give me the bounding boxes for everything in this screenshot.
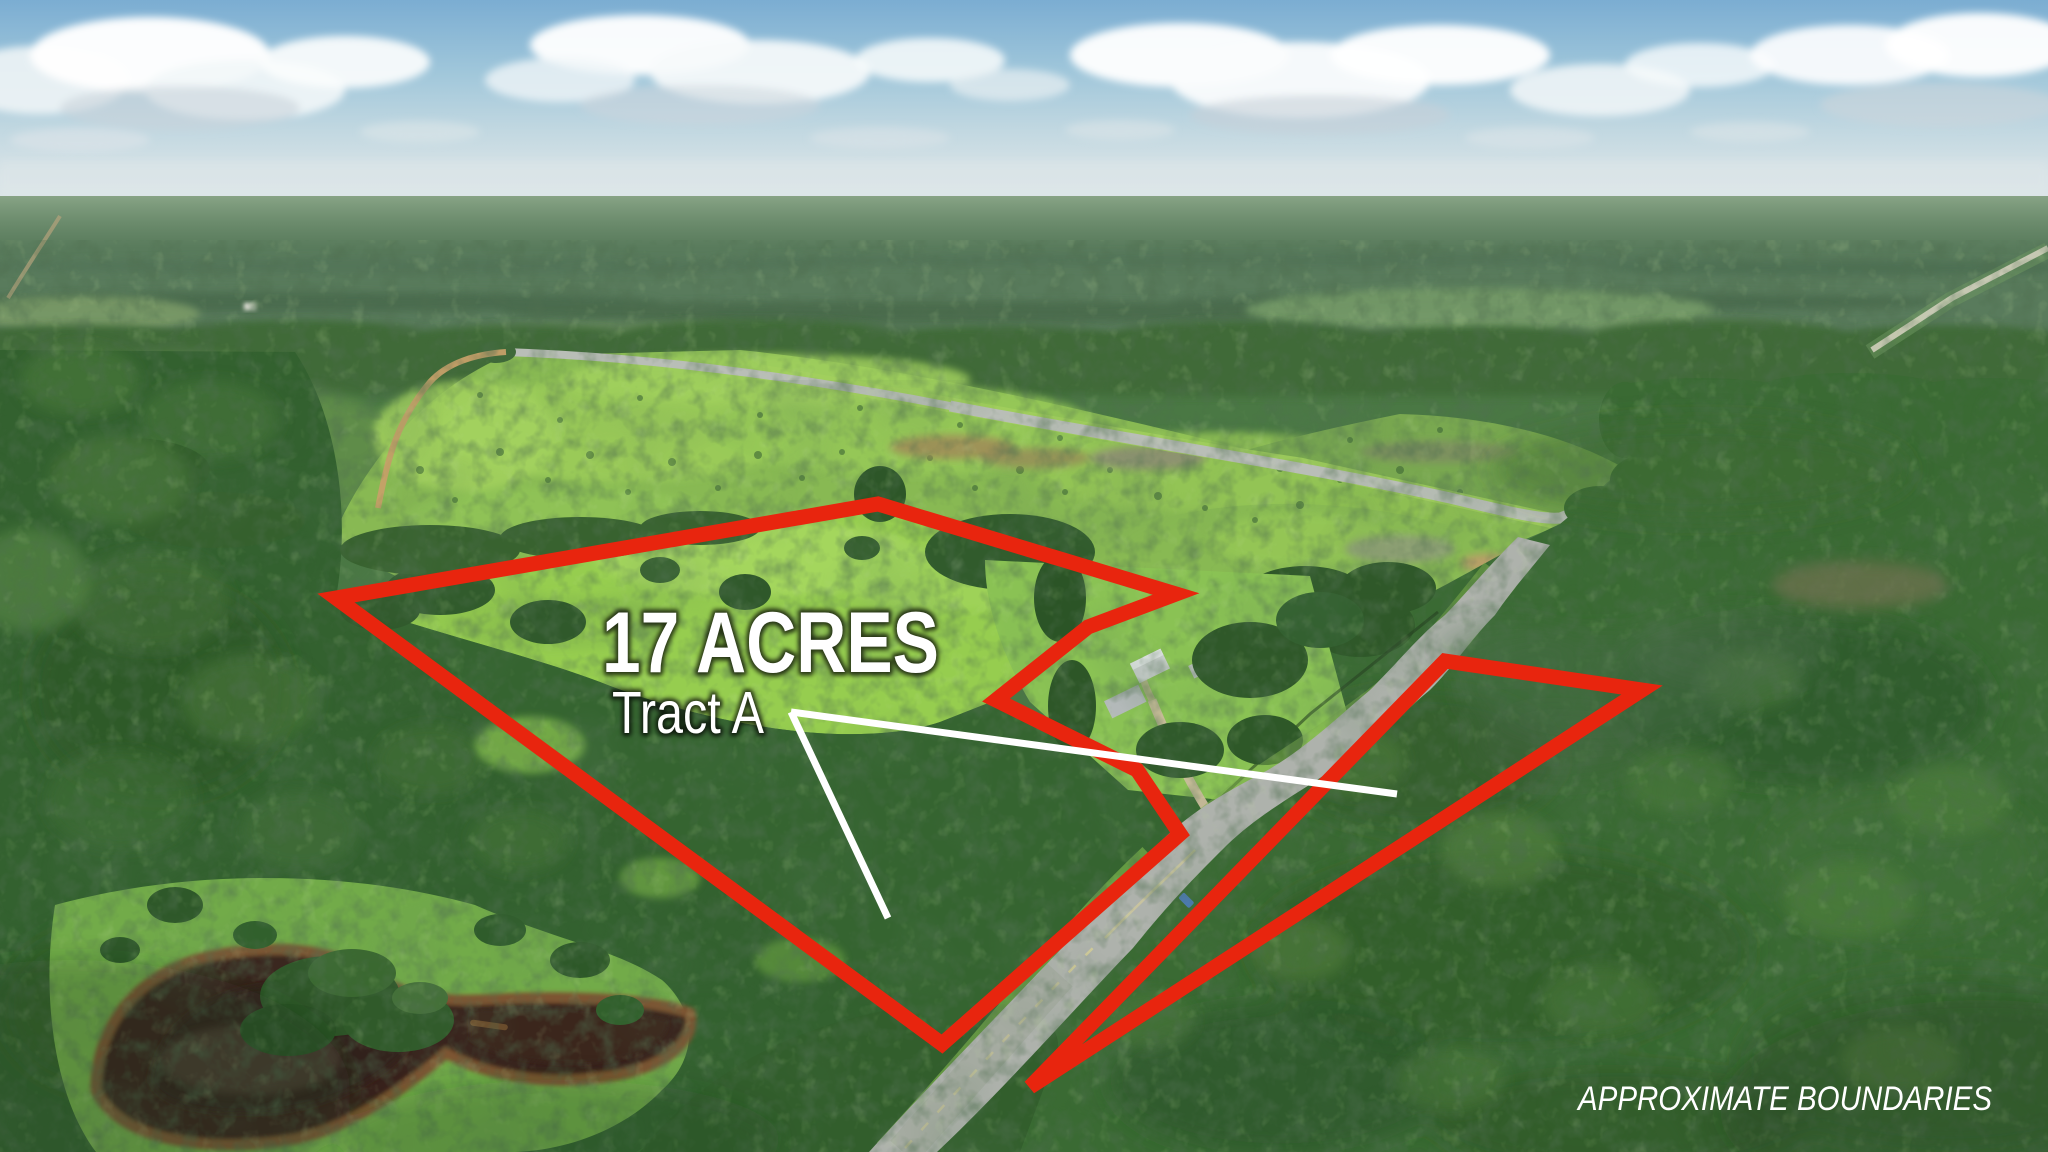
svg-text:APPROXIMATE BOUNDARIES: APPROXIMATE BOUNDARIES <box>1576 1080 1992 1118</box>
svg-text:Tract A: Tract A <box>612 680 765 746</box>
svg-text:17 ACRES: 17 ACRES <box>602 595 939 691</box>
